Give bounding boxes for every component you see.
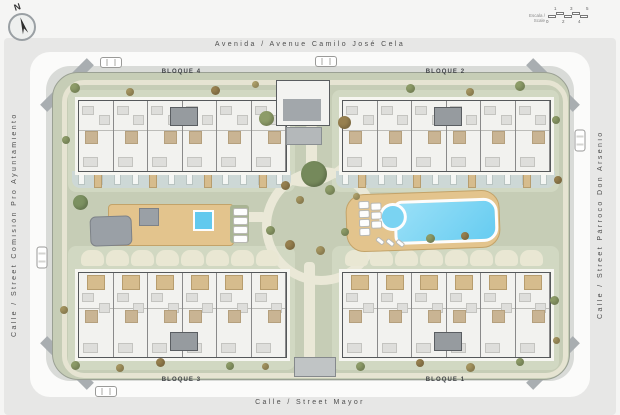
bush-icon: [466, 363, 475, 372]
bush-icon: [211, 86, 220, 95]
patio: [520, 250, 543, 266]
sun-lounger-icon: [233, 217, 248, 225]
amenity-building: [89, 215, 132, 246]
terrace-strip: [336, 171, 555, 188]
scale-tick: 5: [586, 6, 589, 11]
scale-bar-label: Escala / Scale: [517, 13, 545, 23]
bush-icon: [341, 228, 349, 236]
sun-lounger-icon: [233, 226, 248, 234]
swimming-pool: [393, 197, 498, 245]
car-icon: [315, 56, 337, 67]
scale-tick: 3: [570, 6, 573, 11]
street-label-comision-pro-ayuntamiento: Calle / Street Comisión Pro Ayuntamiento: [11, 40, 18, 410]
apartment-unit: [481, 101, 516, 171]
sun-lounger-icon: [233, 235, 248, 243]
patio: [420, 250, 443, 266]
bush-icon: [262, 363, 269, 370]
car-icon: [95, 386, 117, 397]
apartment-unit: [343, 101, 378, 171]
scale-tick: 1: [554, 6, 557, 11]
bush-icon: [226, 362, 234, 370]
bush-icon: [553, 337, 560, 344]
scale-tick: 0: [546, 19, 549, 24]
apartment-unit: [378, 273, 413, 357]
scale-segment: [580, 15, 588, 18]
step-marker: [385, 238, 395, 247]
sun-lounger-icon: [359, 210, 370, 218]
street-label-avenida-camilo-jose-cela: Avenida / Avenue Camilo José Cela: [0, 41, 620, 48]
car-icon: [100, 57, 122, 68]
site-plan: N Escala / Scale 0 1 2 3 4 5 Avenida / A…: [0, 0, 620, 415]
patio: [370, 250, 393, 266]
scale-tick: 2: [562, 19, 565, 24]
patio: [206, 250, 229, 266]
patio: [181, 250, 204, 266]
bush-icon: [554, 176, 562, 184]
car-icon: [575, 130, 586, 152]
pool-deck: [345, 189, 501, 252]
patio: [106, 250, 129, 266]
block-label-bloque-3: BLOQUE 3: [78, 377, 285, 383]
bush-icon: [156, 358, 165, 367]
apartment-unit: [79, 273, 114, 357]
patio: [256, 250, 279, 266]
patio: [81, 250, 104, 266]
apartment-unit: [516, 101, 551, 171]
bush-icon: [550, 296, 559, 305]
bush-icon: [71, 361, 80, 370]
block-label-bloque-2: BLOQUE 2: [342, 69, 549, 75]
terrace-strip: [72, 171, 291, 188]
scale-segment: [556, 12, 564, 15]
apartment-unit: [516, 273, 551, 357]
bush-icon: [266, 226, 275, 235]
bush-icon: [353, 193, 360, 200]
entrance-building-roof: [283, 99, 321, 121]
street-label-calle-mayor: Calle / Street Mayor: [0, 399, 620, 406]
patio: [395, 250, 418, 266]
sun-lounger-icon: [233, 208, 248, 216]
compass-needle-icon: [17, 16, 30, 35]
sun-lounger-icon: [371, 211, 382, 219]
street-label-parroco-don-arsenio: Calle / Street Párroco Don Arsenio: [597, 40, 604, 410]
tree-icon: [259, 111, 274, 126]
tree-icon: [73, 195, 88, 210]
bush-icon: [116, 364, 124, 372]
bush-icon: [252, 81, 259, 88]
compass-north-label: N: [13, 1, 22, 13]
car-icon: [37, 247, 48, 269]
bush-icon: [62, 136, 70, 144]
bush-icon: [70, 83, 80, 93]
scale-tick: 4: [578, 19, 581, 24]
patio: [156, 250, 179, 266]
bush-icon: [406, 84, 415, 93]
scale-segment: [548, 15, 556, 18]
path: [304, 262, 315, 360]
bush-icon: [516, 358, 524, 366]
stair-core: [434, 332, 462, 351]
apartment-unit: [217, 273, 252, 357]
apartment-block-floorplan: [342, 272, 551, 358]
apartment-unit: [114, 273, 149, 357]
apartment-unit: [343, 273, 378, 357]
scale-bar: 0 1 2 3 4 5: [548, 10, 590, 26]
stair-core: [170, 332, 198, 351]
apartment-unit: [481, 273, 516, 357]
sun-lounger-icon: [359, 228, 370, 236]
bush-icon: [515, 81, 525, 91]
apartment-unit: [378, 101, 413, 171]
tree-icon: [338, 116, 351, 129]
bush-icon: [356, 362, 365, 371]
apartment-block-floorplan: [78, 100, 287, 172]
bush-icon: [552, 116, 560, 124]
kids-pool: [193, 210, 214, 231]
bush-icon: [461, 232, 469, 240]
apartment-unit: [217, 101, 252, 171]
bush-icon: [426, 234, 435, 243]
patio: [131, 250, 154, 266]
shed: [139, 208, 159, 226]
scale-segment: [564, 15, 572, 18]
patio: [470, 250, 493, 266]
patio: [495, 250, 518, 266]
step-marker: [375, 236, 385, 245]
tree-icon: [301, 161, 327, 187]
bush-icon: [316, 246, 325, 255]
scale-segment: [572, 12, 580, 15]
bush-icon: [296, 196, 304, 204]
bush-icon: [466, 88, 474, 96]
north-compass-icon: [8, 13, 36, 41]
sun-lounger-icon: [359, 219, 370, 227]
apartment-unit: [114, 101, 149, 171]
patio: [345, 250, 368, 266]
bush-icon: [416, 359, 424, 367]
south-entrance-structure: [294, 357, 336, 377]
patio: [231, 250, 254, 266]
pergola: [286, 127, 322, 145]
bush-icon: [281, 181, 290, 190]
sun-lounger-icon: [371, 220, 382, 228]
block-label-bloque-1: BLOQUE 1: [342, 377, 549, 383]
bush-icon: [325, 185, 335, 195]
apartment-block-floorplan: [342, 100, 551, 172]
sun-lounger-icon: [358, 201, 369, 209]
apartment-unit: [79, 101, 114, 171]
entrance-building: [276, 80, 330, 126]
block-label-bloque-4: BLOQUE 4: [78, 69, 285, 75]
bush-icon: [126, 88, 134, 96]
sun-lounger-icon: [370, 202, 381, 210]
patio: [445, 250, 468, 266]
bush-icon: [60, 306, 68, 314]
apartment-unit: [252, 273, 287, 357]
bush-icon: [285, 240, 295, 250]
stair-core: [170, 107, 198, 126]
apartment-block-floorplan: [78, 272, 287, 358]
stair-core: [434, 107, 462, 126]
